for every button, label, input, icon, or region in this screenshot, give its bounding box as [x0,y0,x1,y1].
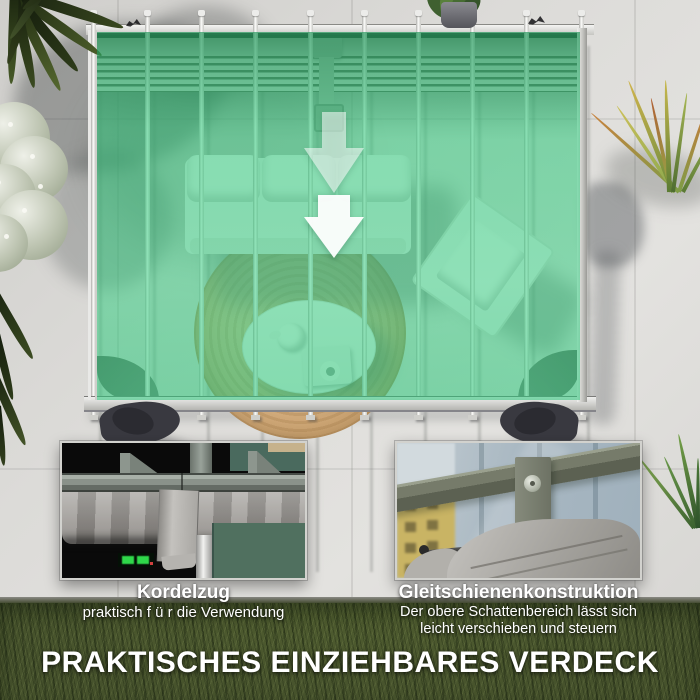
inset1-pole [196,535,212,578]
inset-photo-kordelzug [60,441,307,580]
inset2-screw-slot [530,481,535,486]
headline: PRAKTISCHES EINZIEHBARES VERDECK [0,646,700,680]
bush-flower [8,122,13,127]
white-flower-bush [0,92,88,272]
inset1-exit-glyph [137,556,149,564]
grass-plant-bottom-right [652,418,700,528]
feature-title-gleitschiene: Gleitschienenkonstruktion [357,583,680,602]
inset1-exit-dot [150,562,153,565]
leaf [0,284,36,361]
inset1-cord-strap-fold [161,553,196,570]
arrow-shaft-upper [322,112,346,148]
inset1-cord-strap [157,489,199,562]
feature-desc-gleitschiene-line1: Der obere Schattenbereich lässt sich [367,604,670,621]
inset1-beige-corner [268,443,305,452]
grass-blade [671,93,689,193]
grass-plant-right [615,42,700,192]
inset1-glass-rail [190,443,212,475]
inset-photo-gleitschiene [395,441,642,580]
grass-blade [696,458,700,528]
inset1-teal-panel-bottom [212,523,307,578]
arrow-shaft-lower [318,195,350,217]
feature-desc-kordelzug: praktisch f ü r die Verwendung [22,604,345,621]
feature-desc-gleitschiene-line2: leicht verschieben und steuern [367,621,670,638]
bush-flower [38,184,43,189]
inset1-exit-glyph [122,556,134,564]
leaves-left-lower [0,286,46,456]
feature-title-kordelzug: Kordelzug [62,583,305,602]
bush-flower [4,234,9,239]
product-feature-image: Kordelzug praktisch f ü r die Verwendung… [0,0,700,700]
inset1-bracket-post [120,453,130,475]
inset1-bracket-post [248,451,257,475]
bush-flower [30,154,35,159]
inset2-canopy-fabric [447,519,640,579]
inset1-bracket-wing [130,453,160,475]
inset1-exit-sign [118,553,154,567]
plant-pot [441,2,477,28]
bush-flower [22,208,27,213]
